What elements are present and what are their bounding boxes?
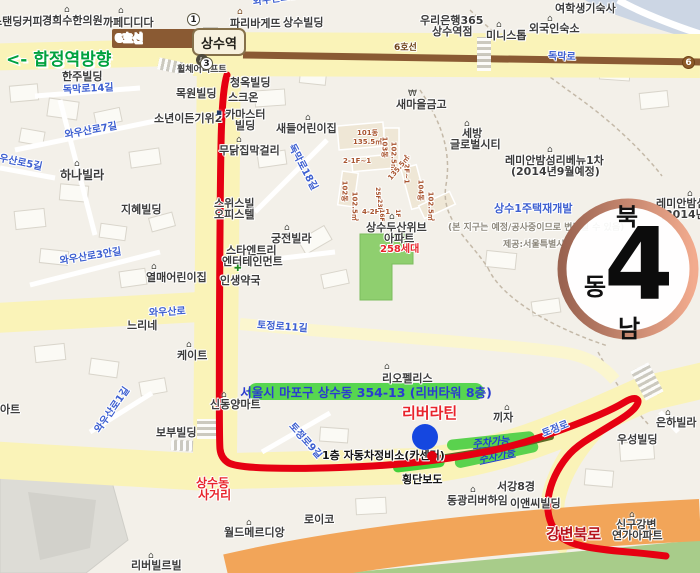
compass: 북 동 남 4 — [556, 197, 700, 341]
hapjeong-direction-label: <- 합정역방향 — [6, 45, 111, 70]
crosswalk — [171, 439, 194, 451]
compass-arrow: 4 — [604, 215, 674, 315]
crosswalk — [477, 37, 491, 71]
compass-east: 동 — [584, 267, 606, 302]
map-canvas[interactable]: 상수역 <- 합정역방향 ♿ 서울시 마포구 상수동 354-13 (리버타워 … — [0, 0, 700, 573]
subway-station-sangsu: 상수역 — [192, 28, 246, 56]
crosswalk — [197, 419, 217, 439]
station-label: 상수역 — [201, 33, 237, 52]
wheelchair-lift-icon: ♿ — [196, 54, 208, 66]
